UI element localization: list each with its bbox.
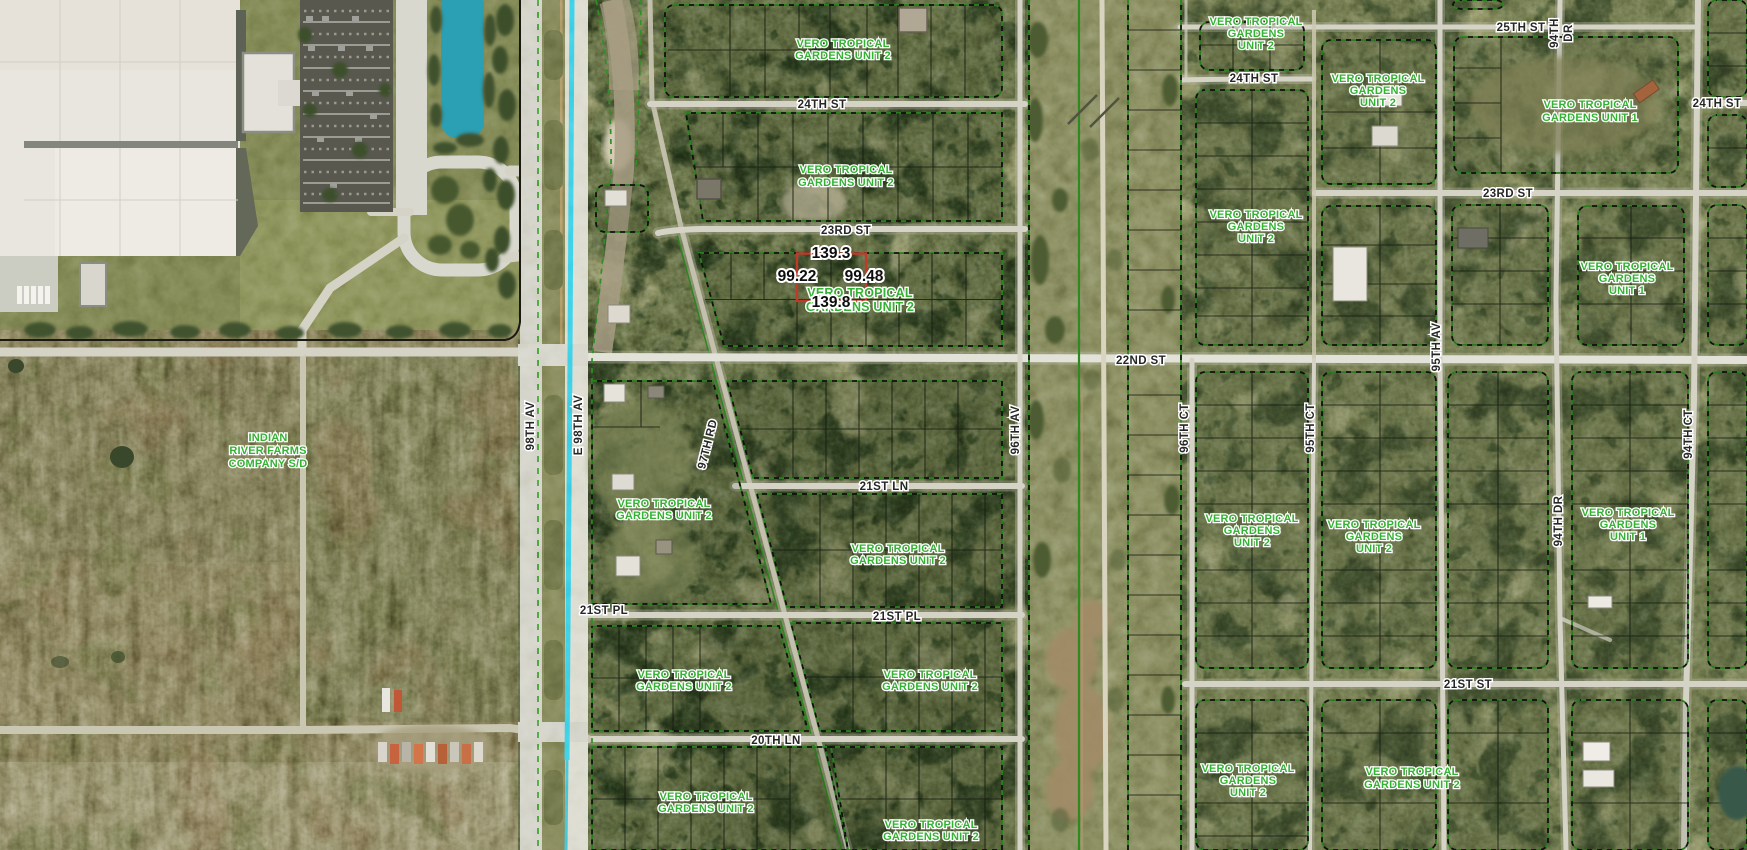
svg-text:UNIT 2: UNIT 2	[1230, 787, 1266, 799]
svg-text:94TH DR: 94TH DR	[1553, 495, 1565, 546]
svg-text:VERO TROPICAL: VERO TROPICAL	[1201, 763, 1294, 775]
svg-text:98TH AV: 98TH AV	[525, 402, 537, 451]
svg-text:GARDENS UNIT 2: GARDENS UNIT 2	[883, 831, 979, 843]
svg-text:GARDENS: GARDENS	[1350, 85, 1406, 97]
svg-text:96TH AV: 96TH AV	[1010, 406, 1022, 455]
svg-text:96TH CT: 96TH CT	[1179, 403, 1191, 452]
svg-text:94TH CT: 94TH CT	[1683, 409, 1695, 458]
svg-text:VERO TROPICAL: VERO TROPICAL	[659, 791, 752, 803]
svg-text:GARDENS: GARDENS	[1599, 273, 1655, 285]
svg-text:UNIT 2: UNIT 2	[1360, 97, 1396, 109]
svg-text:GARDENS UNIT 2: GARDENS UNIT 2	[658, 803, 754, 815]
svg-text:99.48: 99.48	[845, 268, 884, 285]
svg-text:22ND ST: 22ND ST	[1116, 355, 1166, 367]
svg-text:VERO TROPICAL: VERO TROPICAL	[1580, 261, 1673, 273]
svg-text:UNIT 1: UNIT 1	[1610, 531, 1646, 543]
svg-text:23RD ST: 23RD ST	[1483, 188, 1533, 200]
svg-text:GARDENS UNIT 2: GARDENS UNIT 2	[795, 50, 891, 62]
svg-text:UNIT 2: UNIT 2	[1356, 543, 1392, 555]
svg-text:GARDENS UNIT 2: GARDENS UNIT 2	[798, 177, 894, 189]
svg-text:95TH AV: 95TH AV	[1431, 323, 1443, 372]
svg-text:95TH CT: 95TH CT	[1305, 403, 1317, 452]
svg-text:VERO TROPICAL: VERO TROPICAL	[1209, 209, 1302, 221]
svg-text:139.8: 139.8	[812, 294, 851, 311]
svg-text:E 98TH AV: E 98TH AV	[573, 395, 585, 455]
svg-text:VERO TROPICAL: VERO TROPICAL	[1543, 99, 1636, 111]
svg-text:94TH: 94TH	[1549, 18, 1561, 48]
svg-text:VERO TROPICAL: VERO TROPICAL	[1331, 73, 1424, 85]
svg-text:VERO TROPICAL: VERO TROPICAL	[796, 38, 889, 50]
svg-text:21ST ST: 21ST ST	[1444, 679, 1492, 691]
svg-text:GARDENS: GARDENS	[1220, 775, 1276, 787]
svg-text:24TH ST: 24TH ST	[798, 99, 847, 111]
svg-text:GARDENS UNIT 2: GARDENS UNIT 2	[616, 510, 712, 522]
svg-text:21ST PL: 21ST PL	[873, 611, 921, 623]
svg-text:GARDENS UNIT 2: GARDENS UNIT 2	[636, 681, 732, 693]
svg-text:24TH ST: 24TH ST	[1230, 73, 1279, 85]
svg-text:VERO TROPICAL: VERO TROPICAL	[883, 669, 976, 681]
svg-text:GARDENS UNIT 1: GARDENS UNIT 1	[1542, 112, 1638, 124]
svg-text:GARDENS: GARDENS	[1224, 525, 1280, 537]
svg-text:VERO TROPICAL: VERO TROPICAL	[1327, 519, 1420, 531]
svg-text:VERO TROPICAL: VERO TROPICAL	[851, 543, 944, 555]
svg-text:GARDENS: GARDENS	[1228, 28, 1284, 40]
svg-text:VERO TROPICAL: VERO TROPICAL	[1205, 513, 1298, 525]
svg-text:DR: DR	[1563, 24, 1575, 42]
svg-text:VERO TROPICAL: VERO TROPICAL	[1581, 507, 1674, 519]
svg-text:VERO TROPICAL: VERO TROPICAL	[637, 669, 730, 681]
svg-text:RIVER FARMS: RIVER FARMS	[229, 445, 306, 457]
svg-text:99.22: 99.22	[778, 268, 817, 285]
svg-text:VERO TROPICAL: VERO TROPICAL	[799, 164, 892, 176]
svg-text:139.3: 139.3	[812, 245, 851, 262]
svg-text:20TH LN: 20TH LN	[751, 735, 800, 747]
svg-text:GARDENS UNIT 2: GARDENS UNIT 2	[1364, 779, 1460, 791]
svg-text:VERO TROPICAL: VERO TROPICAL	[1365, 766, 1458, 778]
svg-text:INDIAN: INDIAN	[248, 432, 287, 444]
svg-text:VERO TROPICAL: VERO TROPICAL	[617, 498, 710, 510]
svg-text:GARDENS UNIT 2: GARDENS UNIT 2	[850, 555, 946, 567]
svg-text:21ST LN: 21ST LN	[860, 481, 909, 493]
svg-text:GARDENS UNIT 2: GARDENS UNIT 2	[882, 681, 978, 693]
svg-text:COMPANY S/D: COMPANY S/D	[229, 458, 308, 470]
svg-text:VERO TROPICAL: VERO TROPICAL	[1209, 16, 1302, 28]
svg-text:GARDENS: GARDENS	[1600, 519, 1656, 531]
svg-text:24TH ST: 24TH ST	[1693, 98, 1742, 110]
svg-text:UNIT 2: UNIT 2	[1234, 537, 1270, 549]
svg-text:GARDENS: GARDENS	[1346, 531, 1402, 543]
svg-text:25TH ST: 25TH ST	[1497, 22, 1546, 34]
svg-text:21ST PL: 21ST PL	[580, 605, 628, 617]
svg-text:UNIT 2: UNIT 2	[1238, 233, 1274, 245]
svg-text:VERO TROPICAL: VERO TROPICAL	[884, 819, 977, 831]
svg-text:23RD ST: 23RD ST	[821, 225, 871, 237]
svg-text:UNIT 2: UNIT 2	[1238, 40, 1274, 52]
svg-text:GARDENS: GARDENS	[1228, 221, 1284, 233]
svg-text:UNIT 1: UNIT 1	[1609, 285, 1645, 297]
